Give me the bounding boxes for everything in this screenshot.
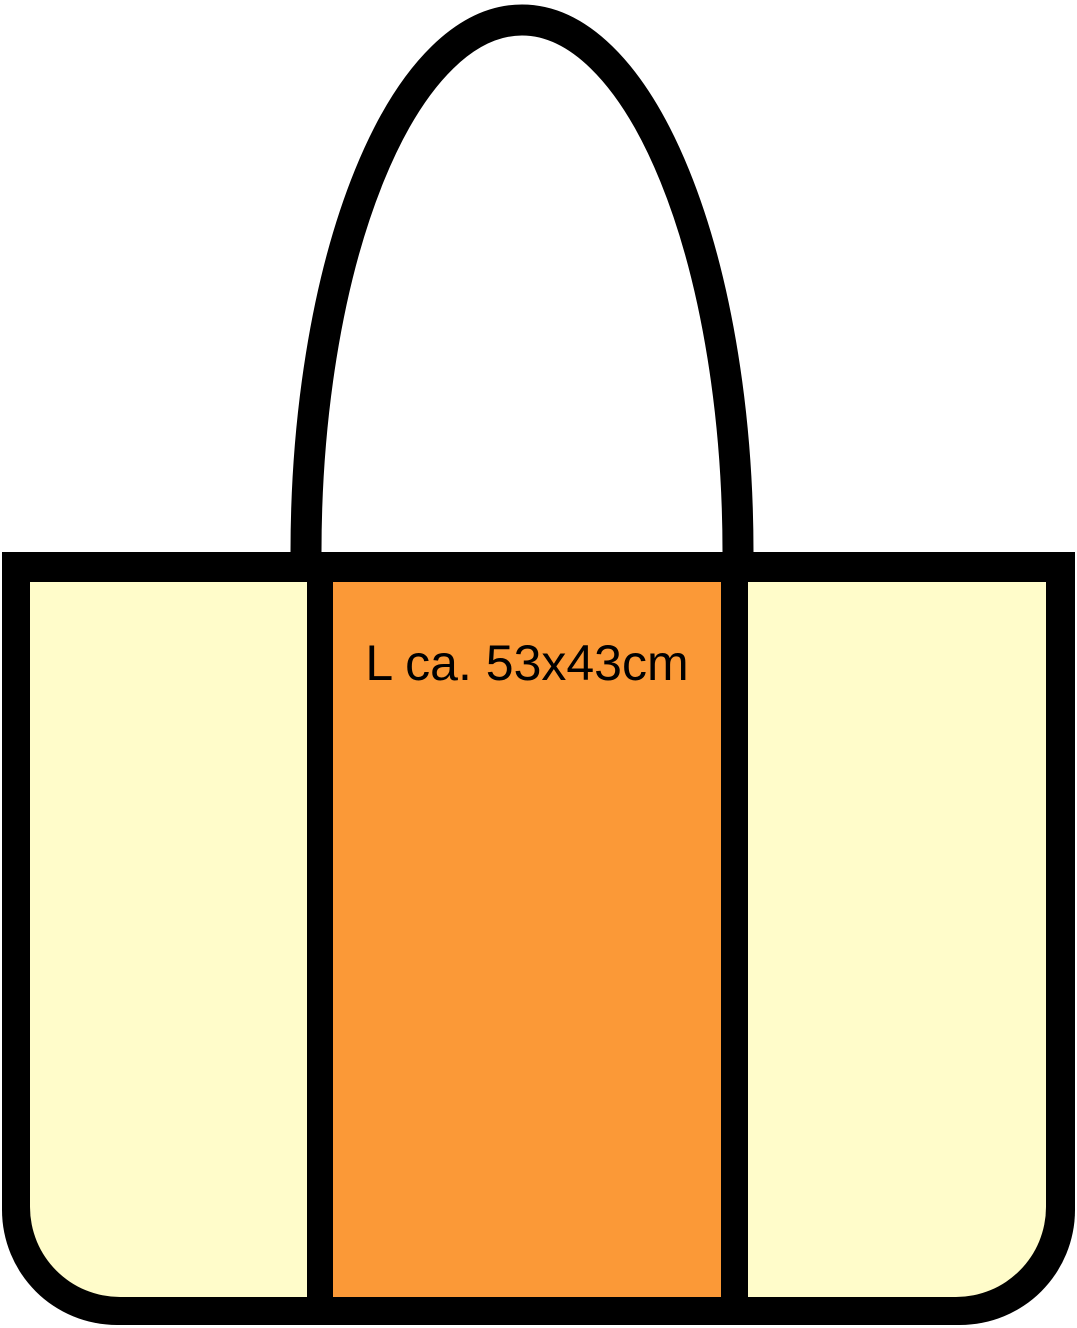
bag-drawing-canvas: L ca. 53x43cm xyxy=(0,0,1077,1328)
size-label: L ca. 53x43cm xyxy=(365,635,688,691)
bag-illustration: L ca. 53x43cm xyxy=(0,0,1077,1328)
bag-handle xyxy=(306,20,738,552)
